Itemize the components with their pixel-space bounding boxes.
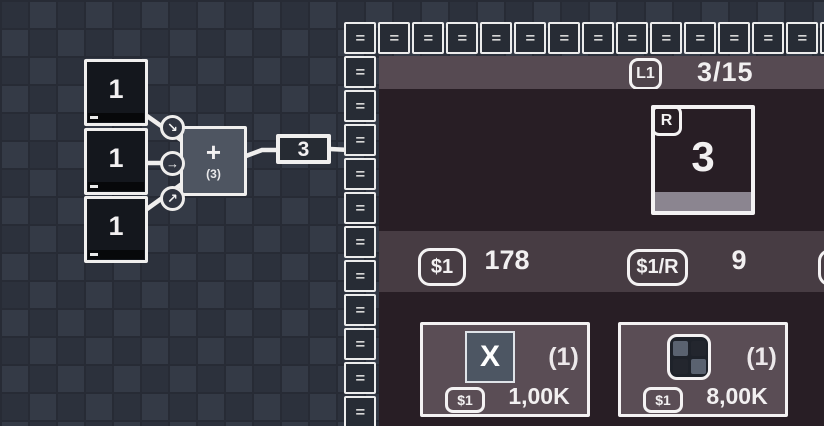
- resource-fill-strip: [655, 192, 751, 211]
- conveyor-belt-left: ===========: [344, 56, 378, 426]
- income-badge: $1/R: [627, 249, 688, 286]
- conveyor-tile[interactable]: =: [344, 56, 376, 88]
- grid-cell: [691, 359, 706, 374]
- conveyor-tile[interactable]: =: [684, 22, 716, 54]
- conveyor-tile[interactable]: =: [514, 22, 546, 54]
- belt-glyph: =: [355, 405, 365, 420]
- source-node-3[interactable]: 1: [84, 196, 148, 263]
- belt-glyph: =: [355, 31, 365, 46]
- conveyor-tile[interactable]: =: [548, 22, 580, 54]
- grid-cell: [673, 341, 688, 356]
- conveyor-tile[interactable]: =: [344, 158, 376, 190]
- conveyor-tile[interactable]: =: [344, 294, 376, 326]
- belt-glyph: =: [355, 99, 365, 114]
- shop-item-multiplier[interactable]: X (1) $1 1,00K: [420, 322, 590, 417]
- level-badge: L1: [629, 58, 662, 90]
- price-currency-badge: $1: [643, 387, 683, 413]
- x-node-icon: X: [465, 331, 515, 383]
- grid-cell: [691, 341, 706, 356]
- wave-progress: 3/15: [697, 57, 787, 88]
- source-value: 1: [108, 145, 123, 172]
- panel-header-bar: L1 3/15: [379, 56, 824, 89]
- belt-glyph: =: [389, 31, 399, 46]
- output-node[interactable]: 3: [276, 134, 331, 164]
- source-progress-bar: [88, 182, 144, 191]
- belt-glyph: =: [355, 235, 365, 250]
- belt-glyph: =: [797, 31, 807, 46]
- shop-item-price: 8,00K: [689, 383, 785, 410]
- plus-icon: +: [206, 141, 221, 164]
- arrow-upright-icon: ↗: [167, 192, 178, 205]
- conveyor-tile[interactable]: =: [344, 328, 376, 360]
- conveyor-belt-top: ===============: [344, 22, 824, 56]
- conveyor-tile[interactable]: =: [650, 22, 682, 54]
- belt-glyph: =: [355, 201, 365, 216]
- resource-value: 3: [655, 133, 751, 181]
- progress-tick: [90, 116, 98, 119]
- arrow-downright-icon: ↘: [167, 121, 178, 134]
- source-node-1[interactable]: 1: [84, 59, 148, 126]
- conveyor-tile[interactable]: =: [344, 396, 376, 426]
- conveyor-tile[interactable]: =: [344, 362, 376, 394]
- conveyor-tile[interactable]: =: [344, 192, 376, 224]
- conveyor-tile[interactable]: =: [344, 22, 376, 54]
- income-value: 9: [719, 245, 759, 276]
- belt-glyph: =: [559, 31, 569, 46]
- adder-node[interactable]: + (3): [180, 126, 247, 196]
- belt-glyph: =: [355, 371, 365, 386]
- conveyor-tile[interactable]: =: [344, 260, 376, 292]
- belt-glyph: =: [355, 303, 365, 318]
- belt-glyph: =: [491, 31, 501, 46]
- conveyor-tile[interactable]: =: [344, 124, 376, 156]
- money-badge: $1: [418, 248, 466, 286]
- conveyor-tile[interactable]: =: [480, 22, 512, 54]
- resource-badge: R: [651, 105, 682, 136]
- price-currency-badge: $1: [445, 387, 485, 413]
- conveyor-tile[interactable]: =: [752, 22, 784, 54]
- belt-glyph: =: [593, 31, 603, 46]
- belt-glyph: =: [661, 31, 671, 46]
- conveyor-tile[interactable]: =: [446, 22, 478, 54]
- grid-cell: [673, 359, 688, 374]
- progress-tick: [90, 253, 98, 256]
- belt-glyph: =: [763, 31, 773, 46]
- belt-glyph: =: [627, 31, 637, 46]
- conveyor-tile[interactable]: =: [582, 22, 614, 54]
- panel-main-area: R 3: [379, 89, 824, 231]
- shop-item-price: 1,00K: [491, 383, 587, 410]
- splitter-grid-icon: [667, 334, 711, 380]
- conveyor-tile[interactable]: =: [786, 22, 818, 54]
- wire-adder-output: [246, 150, 278, 156]
- conveyor-tile[interactable]: =: [344, 226, 376, 258]
- stat-badge-partial: [818, 249, 824, 286]
- game-screen: 1 1 1 + (3) ↘ → ↗ 3 =============== ====…: [0, 0, 824, 426]
- money-value: 178: [472, 245, 542, 276]
- base-panel: L1 3/15 R 3 $1 178 $1/R 9 X (1) $1 1,00K: [379, 56, 824, 426]
- belt-glyph: =: [355, 65, 365, 80]
- input-port-1[interactable]: ↘: [160, 115, 185, 140]
- source-node-2[interactable]: 1: [84, 128, 148, 195]
- conveyor-tile[interactable]: =: [344, 90, 376, 122]
- belt-glyph: =: [355, 337, 365, 352]
- belt-glyph: =: [695, 31, 705, 46]
- belt-glyph: =: [355, 269, 365, 284]
- input-port-3[interactable]: ↗: [160, 186, 185, 211]
- belt-glyph: =: [423, 31, 433, 46]
- belt-glyph: =: [355, 133, 365, 148]
- output-value: 3: [298, 139, 310, 160]
- belt-glyph: =: [457, 31, 467, 46]
- panel-shop-area: X (1) $1 1,00K (1) $1 8,00K: [379, 292, 824, 426]
- conveyor-tile[interactable]: =: [718, 22, 750, 54]
- shop-item-splitter[interactable]: (1) $1 8,00K: [618, 322, 788, 417]
- shop-item-count: (1): [536, 343, 591, 372]
- resource-card[interactable]: R 3: [651, 105, 755, 215]
- belt-glyph: =: [355, 167, 365, 182]
- progress-tick: [90, 185, 98, 188]
- conveyor-tile[interactable]: =: [820, 22, 824, 54]
- source-value: 1: [108, 76, 123, 103]
- conveyor-tile[interactable]: =: [616, 22, 648, 54]
- arrow-right-icon: →: [166, 157, 179, 170]
- source-value: 1: [108, 213, 123, 240]
- belt-glyph: =: [525, 31, 535, 46]
- source-progress-bar: [88, 113, 144, 122]
- conveyor-tile[interactable]: =: [378, 22, 410, 54]
- belt-glyph: =: [729, 31, 739, 46]
- shop-item-count: (1): [734, 343, 789, 372]
- input-port-2[interactable]: →: [160, 151, 185, 176]
- adder-buffer: (3): [206, 167, 221, 181]
- panel-stats-bar: $1 178 $1/R 9: [379, 231, 824, 292]
- conveyor-tile[interactable]: =: [412, 22, 444, 54]
- source-progress-bar: [88, 250, 144, 259]
